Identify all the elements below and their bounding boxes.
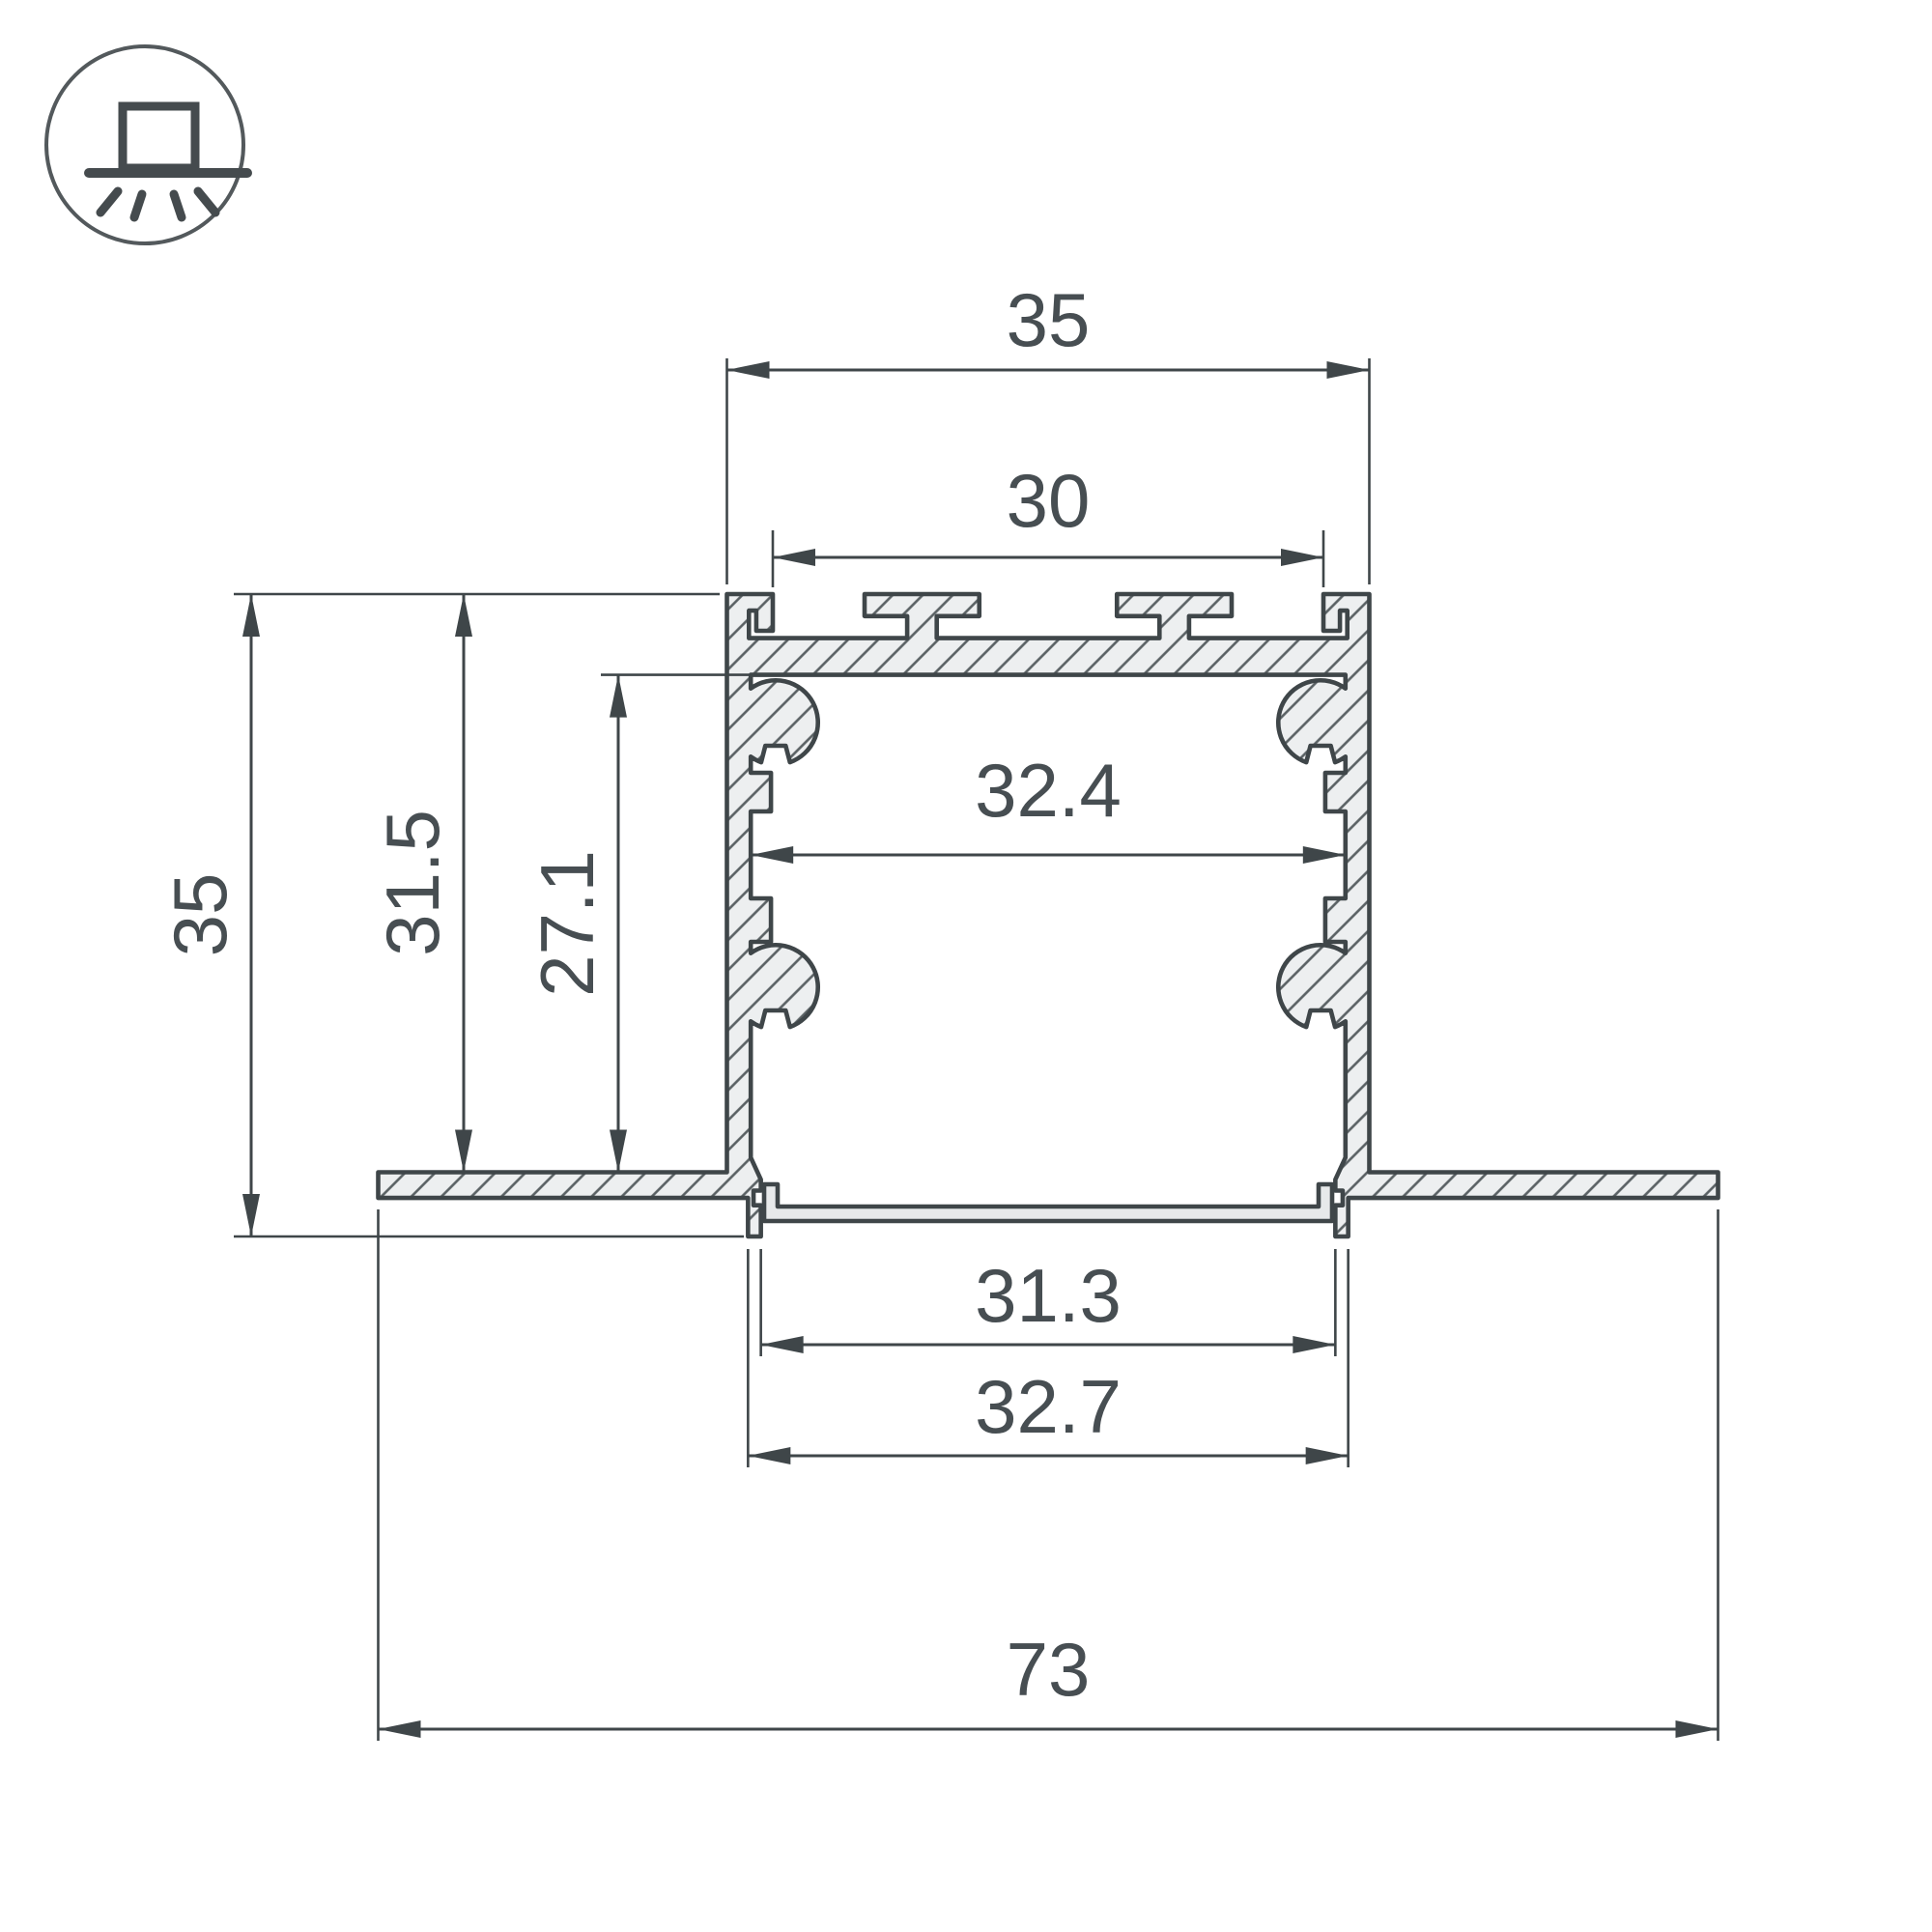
dim-label-overall-flange-width: 73 bbox=[1007, 1627, 1091, 1712]
profile-drawing: 35 30 32.4 35 31.5 27.1 bbox=[0, 0, 1932, 1932]
recessed-mount-light-icon bbox=[46, 46, 247, 243]
dim-label-cavity-height: 27.1 bbox=[525, 850, 610, 997]
diffuser-plate bbox=[764, 1184, 1332, 1221]
dim-bottom-opening-width: 31.3 bbox=[761, 1249, 1336, 1356]
dim-label-inner-width: 32.4 bbox=[975, 748, 1122, 833]
dim-label-outer-top-width: 35 bbox=[1007, 277, 1091, 362]
dim-label-recess-depth: 31.5 bbox=[370, 810, 455, 956]
drawing-page: 35 30 32.4 35 31.5 27.1 bbox=[0, 0, 1932, 1932]
dim-label-groove-span: 30 bbox=[1007, 458, 1091, 543]
dim-label-overall-height: 35 bbox=[157, 873, 242, 957]
icon-light-rays bbox=[100, 191, 215, 217]
dim-inner-width: 32.4 bbox=[751, 748, 1346, 864]
dim-label-bottom-opening-width: 31.3 bbox=[975, 1253, 1122, 1338]
dim-recess-depth: 31.5 bbox=[370, 594, 472, 1173]
dim-groove-span: 30 bbox=[773, 458, 1323, 587]
icon-fixture-box bbox=[123, 106, 195, 168]
dim-label-bottom-outer-width: 32.7 bbox=[975, 1364, 1122, 1449]
